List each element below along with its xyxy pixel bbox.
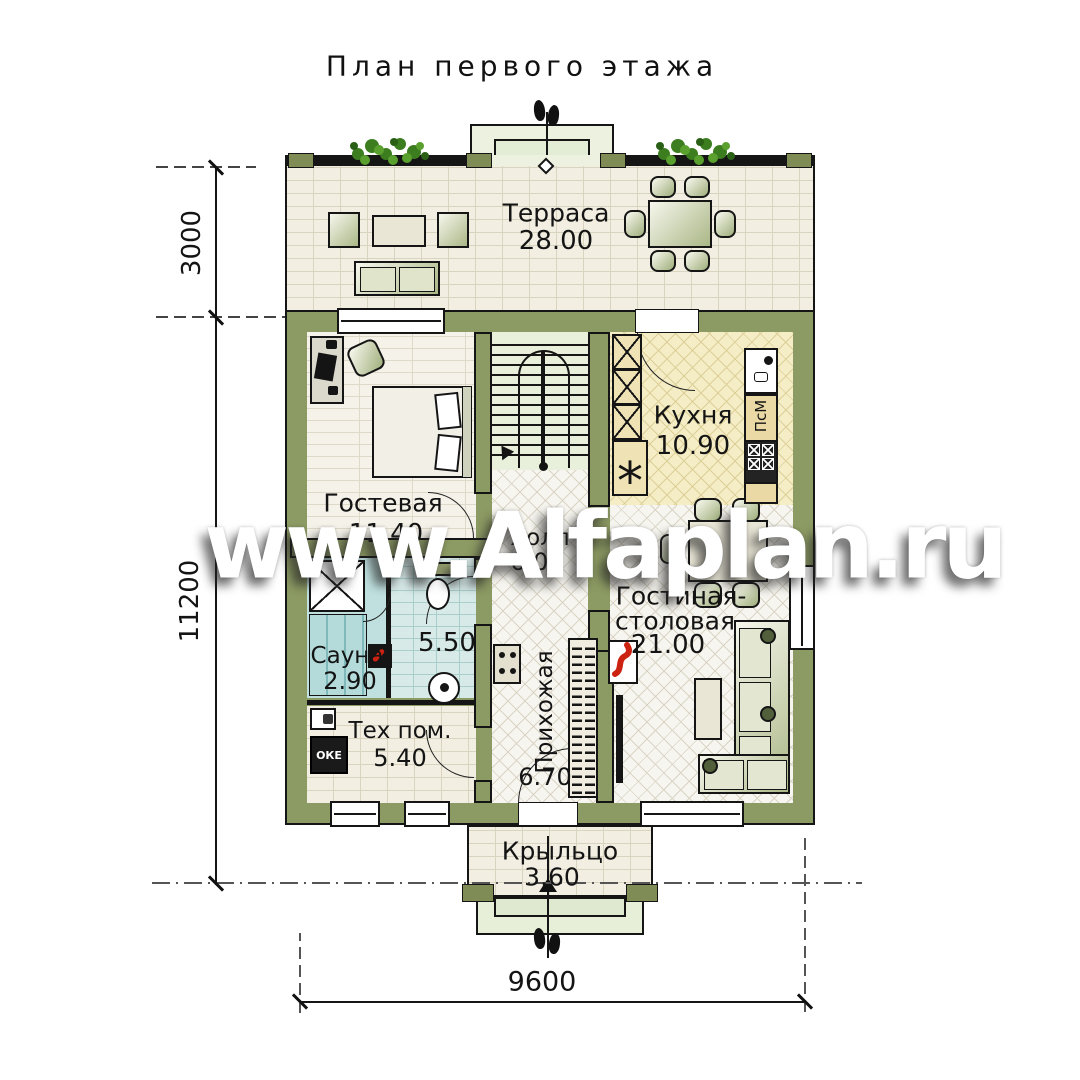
chair: [624, 210, 646, 238]
chair: [684, 250, 710, 272]
sofa-pillow: [702, 758, 718, 774]
page-title: План первого этажа: [326, 50, 718, 83]
armchair: [328, 212, 360, 248]
wall-bath-hall: [474, 624, 492, 728]
terrace-post: [466, 153, 492, 168]
front-door-opening: [518, 802, 578, 826]
chair: [650, 250, 676, 272]
dim-terrace-depth: 3000: [177, 210, 207, 276]
dishwasher-label: ПсМ: [752, 400, 770, 432]
stove-icon: [744, 440, 778, 484]
terrace-kitchen-door-opening: [635, 309, 699, 333]
hallway-label: Прихожая: [532, 650, 558, 773]
terrace-post: [288, 153, 314, 168]
sink-icon: [744, 348, 778, 394]
boiler-label: ОКЕ: [316, 749, 342, 762]
kitchen-cabinet: [612, 404, 642, 440]
bathroom-area: 5.50: [418, 628, 476, 658]
sauna-area: 2.90: [323, 667, 376, 695]
window: [337, 308, 445, 334]
chair: [714, 210, 736, 238]
window: [640, 801, 744, 827]
pump-box: [310, 708, 336, 730]
plant-icon: [348, 134, 430, 170]
sofa-pillow: [760, 628, 776, 644]
wall-hall-kitchen: [588, 332, 610, 507]
terrace-post: [786, 153, 812, 168]
dim-width: 9600: [508, 967, 577, 998]
bath-sink-icon: [428, 672, 460, 704]
porch-steps-inner: [494, 897, 626, 917]
tech-label: Тех пом.: [349, 718, 452, 744]
hallway-area: 6.70: [518, 763, 571, 791]
terrace-post: [600, 153, 626, 168]
terrace-table: [372, 215, 426, 247]
terrace-label: Терраса: [503, 199, 610, 228]
wall-bath-hall: [474, 780, 492, 803]
kitchen-label: Кухня: [654, 401, 733, 430]
tech-area: 5.40: [373, 744, 426, 772]
dim-extension: [156, 166, 256, 168]
bed: [372, 386, 472, 478]
wall-guest-stairs: [474, 332, 492, 494]
dim-extension: [156, 316, 288, 318]
chair: [650, 176, 676, 198]
axis-line: [152, 882, 862, 884]
tv: [616, 695, 623, 783]
porch-post: [462, 884, 494, 902]
kitchen-area: 10.90: [656, 431, 730, 461]
dim-total-depth: 11200: [175, 560, 205, 643]
sofa-pillow: [760, 706, 776, 722]
sofa: [354, 261, 440, 296]
stairs-newel: [539, 462, 548, 471]
dim-line-horizontal: [300, 1001, 806, 1003]
desk: [310, 336, 344, 404]
boiler: ОКЕ: [310, 736, 348, 774]
window: [330, 801, 380, 827]
terrace-area: 28.00: [519, 226, 593, 256]
sauna-label: Сауна: [311, 643, 384, 669]
coffee-table: [694, 678, 722, 740]
porch-post: [626, 884, 658, 902]
window: [404, 801, 450, 827]
dining-table: [648, 200, 712, 248]
dim-extension: [804, 836, 806, 1012]
stairs-stringer: [541, 352, 545, 468]
plant-icon: [652, 134, 738, 170]
wardrobe: [568, 638, 598, 798]
armchair: [437, 212, 469, 248]
floor-plan-canvas: План первого этажа Терраса 28.00: [0, 0, 1080, 1080]
chair: [684, 176, 710, 198]
watermark: www.Alfaplan.ru: [204, 493, 1004, 600]
porch-area: 3.60: [524, 863, 580, 892]
kitchen-cabinet: [612, 334, 642, 370]
porch-label: Крыльцо: [502, 837, 618, 866]
fridge-icon: *: [612, 440, 648, 496]
kitchen-cabinet: [612, 369, 642, 405]
living-area: 21.00: [631, 630, 705, 660]
shoe-bench: [493, 644, 521, 684]
